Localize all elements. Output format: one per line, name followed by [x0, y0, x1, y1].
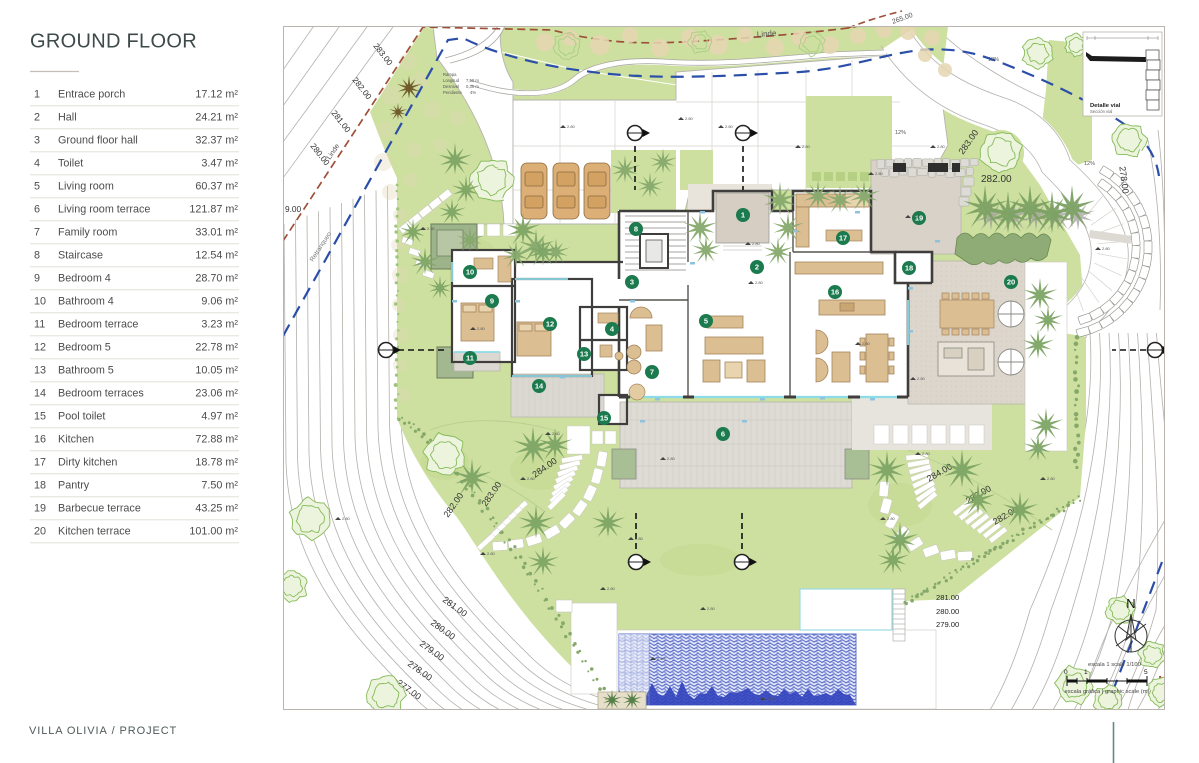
svg-text:Bedroom 4: Bedroom 4: [58, 273, 111, 285]
svg-text:Dirty kitchen: Dirty kitchen: [58, 457, 117, 469]
svg-text:VILLA OLIVIA / PROJECT: VILLA OLIVIA / PROJECT: [29, 725, 177, 737]
svg-text:17.12 m²: 17.12 m²: [195, 89, 238, 101]
svg-text:Entrace porch: Entrace porch: [58, 89, 125, 101]
svg-text:279.00: 279.00: [936, 620, 959, 629]
svg-text:2.80: 2.80: [752, 241, 761, 246]
svg-text:1: 1: [1084, 669, 1088, 676]
svg-text:Longitud: Longitud: [443, 78, 460, 83]
svg-text:2.80: 2.80: [567, 124, 576, 129]
svg-text:10.05 m²: 10.05 m²: [195, 365, 238, 377]
svg-text:6: 6: [34, 204, 40, 216]
svg-text:Barbecue terrace: Barbecue terrace: [58, 503, 141, 515]
svg-text:23.06 m²: 23.06 m²: [195, 388, 238, 400]
svg-text:12%: 12%: [1084, 161, 1095, 167]
svg-text:18: 18: [34, 480, 46, 492]
svg-text:Living room: Living room: [58, 181, 114, 193]
svg-text:Desnivel: Desnivel: [443, 84, 459, 89]
svg-text:Bedroom 5: Bedroom 5: [58, 342, 111, 354]
svg-text:4%: 4%: [470, 90, 476, 95]
svg-text:escala gráfica | graphic sca: escala gráfica | graphic scale (m): [1065, 689, 1150, 695]
svg-text:7: 7: [34, 227, 40, 239]
svg-text:Bedroom terraces: Bedroom terraces: [58, 388, 144, 400]
svg-text:18.78 m²: 18.78 m²: [195, 457, 238, 469]
svg-text:Toilet: Toilet: [58, 158, 83, 170]
svg-text:2.80: 2.80: [607, 586, 616, 591]
svg-text:3: 3: [34, 135, 40, 147]
svg-text:12: 12: [546, 320, 554, 329]
svg-text:2.80: 2.80: [767, 696, 776, 701]
svg-text:GROUND FLOOR: GROUND FLOOR: [30, 31, 197, 53]
svg-text:2.80: 2.80: [802, 144, 811, 149]
svg-text:14: 14: [535, 382, 544, 391]
svg-text:4.97 m²: 4.97 m²: [201, 411, 238, 423]
svg-text:2.80: 2.80: [342, 516, 351, 521]
svg-text:24.21 m²: 24.21 m²: [195, 112, 238, 124]
svg-text:33.01 m²: 33.01 m²: [195, 227, 238, 239]
svg-text:17: 17: [839, 234, 847, 243]
svg-text:28.70 m²: 28.70 m²: [195, 273, 238, 285]
svg-text:0,30 m: 0,30 m: [466, 84, 479, 89]
svg-text:12%: 12%: [895, 130, 906, 136]
svg-text:Staircase: Staircase: [58, 250, 103, 262]
svg-text:Kitchen: Kitchen: [58, 434, 94, 446]
svg-text:20: 20: [1007, 278, 1015, 287]
svg-text:Bathroom 4: Bathroom 4: [58, 296, 114, 308]
svg-text:Bedroom terrace: Bedroom terrace: [58, 319, 138, 331]
svg-text:2.80: 2.80: [707, 606, 716, 611]
svg-text:2.80: 2.80: [487, 551, 496, 556]
svg-text:9: 9: [490, 297, 494, 306]
svg-text:2.80: 2.80: [477, 326, 486, 331]
svg-text:282.00: 282.00: [981, 174, 1012, 185]
svg-text:32.37 m²: 32.37 m²: [195, 135, 238, 147]
svg-text:1: 1: [741, 211, 745, 220]
svg-text:2.80: 2.80: [657, 656, 666, 661]
svg-text:43.25 m²: 43.25 m²: [195, 503, 238, 515]
svg-text:60.37 m²: 60.37 m²: [195, 181, 238, 193]
svg-text:N: N: [1126, 596, 1135, 611]
svg-text:2.80: 2.80: [635, 536, 644, 541]
svg-text:Hall: Hall: [58, 112, 77, 124]
svg-text:Family room: Family room: [58, 227, 117, 239]
svg-text:14: 14: [34, 388, 46, 400]
svg-text:9: 9: [34, 273, 40, 285]
svg-text:2.80: 2.80: [667, 456, 676, 461]
svg-text:2.80: 2.80: [427, 226, 436, 231]
svg-text:2.80: 2.80: [755, 280, 764, 285]
svg-text:12: 12: [34, 342, 46, 354]
svg-text:Kitchen terrace: Kitchen terrace: [58, 526, 131, 538]
svg-text:0: 0: [1064, 669, 1068, 676]
svg-text:Pantry: Pantry: [58, 480, 90, 492]
svg-text:4: 4: [34, 158, 40, 170]
svg-text:Living room terrace: Living room terrace: [58, 204, 150, 216]
svg-text:15: 15: [34, 411, 46, 423]
svg-text:22.78 m²: 22.78 m²: [195, 342, 238, 354]
svg-text:15: 15: [600, 414, 608, 423]
svg-text:72.88 m²: 72.88 m²: [195, 434, 238, 446]
svg-text:2.80: 2.80: [685, 116, 694, 121]
svg-text:3.47 m²: 3.47 m²: [201, 158, 238, 170]
svg-text:13: 13: [580, 350, 588, 359]
svg-text:2.80: 2.80: [1102, 246, 1111, 251]
svg-text:16: 16: [34, 434, 46, 446]
svg-text:16: 16: [831, 288, 839, 297]
svg-text:2.80: 2.80: [725, 124, 734, 129]
svg-text:2.80: 2.80: [922, 451, 931, 456]
svg-text:281.00: 281.00: [936, 593, 959, 602]
svg-text:9.06 m²: 9.06 m²: [201, 296, 238, 308]
svg-text:13: 13: [34, 365, 46, 377]
svg-text:20: 20: [34, 526, 46, 538]
svg-text:Sección vial: Sección vial: [1090, 109, 1112, 114]
svg-text:2.80: 2.80: [875, 171, 884, 176]
svg-text:2.80: 2.80: [887, 516, 896, 521]
svg-text:8: 8: [34, 250, 40, 262]
svg-text:121.87 m²: 121.87 m²: [189, 204, 238, 216]
svg-text:9.00: 9.00: [285, 204, 302, 214]
svg-text:2.80: 2.80: [912, 214, 921, 219]
svg-text:2.80: 2.80: [1047, 476, 1056, 481]
svg-text:Bathroom 5: Bathroom 5: [58, 365, 114, 377]
svg-text:18: 18: [905, 264, 913, 273]
svg-text:2: 2: [34, 112, 40, 124]
svg-text:5: 5: [704, 317, 708, 326]
svg-text:7,50 m: 7,50 m: [466, 78, 479, 83]
svg-text:2.80: 2.80: [862, 341, 871, 346]
svg-text:101.00 m²: 101.00 m²: [189, 526, 238, 538]
svg-text:11: 11: [34, 319, 45, 331]
svg-text:7.50 m²: 7.50 m²: [201, 480, 238, 492]
svg-text:10: 10: [34, 296, 46, 308]
svg-text:2.80: 2.80: [552, 431, 561, 436]
svg-text:12%: 12%: [988, 57, 999, 63]
svg-text:10: 10: [466, 268, 474, 277]
svg-text:6: 6: [721, 430, 725, 439]
svg-text:11: 11: [466, 354, 474, 363]
svg-text:Rampa: Rampa: [443, 72, 457, 77]
svg-text:17: 17: [34, 457, 46, 469]
svg-text:Pool toilet: Pool toilet: [58, 411, 105, 423]
svg-text:7: 7: [650, 368, 654, 377]
svg-text:2: 2: [755, 263, 759, 272]
svg-text:5: 5: [1144, 669, 1148, 676]
svg-text:Ground floor hall: Ground floor hall: [58, 135, 138, 147]
svg-text:1: 1: [34, 89, 40, 101]
svg-text:Linde: Linde: [757, 29, 778, 39]
svg-text:3.23 m²: 3.23 m²: [201, 319, 238, 331]
svg-text:2.80: 2.80: [917, 376, 926, 381]
svg-text:280.00: 280.00: [936, 607, 959, 616]
svg-text:5: 5: [34, 181, 40, 193]
svg-text:escala 1 scale 1/100: escala 1 scale 1/100: [1088, 662, 1141, 668]
svg-text:19: 19: [34, 503, 46, 515]
svg-text:2.80: 2.80: [527, 476, 536, 481]
svg-text:Pendiente: Pendiente: [443, 90, 463, 95]
svg-text:3: 3: [630, 278, 634, 287]
svg-text:8: 8: [634, 225, 638, 234]
svg-text:2.80: 2.80: [937, 144, 946, 149]
svg-text:12.54 m²: 12.54 m²: [195, 250, 238, 262]
